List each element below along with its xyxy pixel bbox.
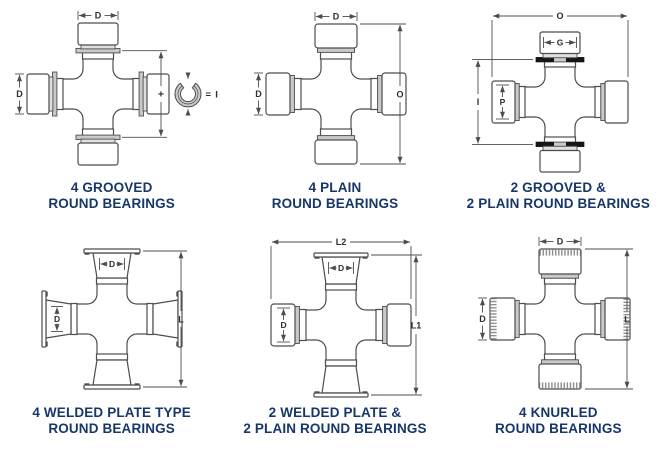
bearing-cap-top	[76, 23, 120, 59]
diagram-4-knurled: D D L	[447, 233, 670, 405]
bearing-cap-left-plain	[492, 81, 525, 123]
diagram-4-welded-plate: D D L	[0, 233, 223, 405]
dim-label-cap-diameter: D	[281, 320, 287, 330]
dim-cap-width: D	[539, 237, 581, 247]
dim-label-overall-height: L1	[411, 321, 422, 331]
bearing-cap-bottom-welded	[314, 360, 368, 397]
dim-label-cap-diameter: D	[479, 314, 486, 324]
dim-label-overall-height: L	[178, 315, 184, 325]
bearing-cap-bottom	[84, 354, 140, 389]
dim-label-inside-snap-rings: I	[477, 97, 480, 107]
dim-label-overall-height: O	[397, 90, 404, 100]
panel-4-plain: D D O 4 PLAIN ROUND BEARINGS	[223, 0, 446, 225]
caption-4-plain: 4 PLAIN ROUND BEARINGS	[272, 180, 399, 213]
dim-label-cap-width: D	[338, 263, 344, 273]
panel-4-grooved: D D + = I 4 GROOVED	[0, 0, 223, 225]
bearing-cap-bottom-grooved	[536, 137, 584, 172]
bearing-cap-bottom	[539, 354, 581, 389]
dim-cap-diameter: D	[15, 74, 24, 114]
bearing-cap-top	[539, 249, 581, 284]
panel-4-welded-plate: D D L 4 WELDED PLATE TYPE ROUND BEARINGS	[0, 225, 223, 450]
bearing-cap-left	[27, 72, 63, 116]
dim-label-plain-cap-diameter: P	[499, 97, 505, 107]
cross-body	[300, 58, 372, 130]
dim-label-cap-width: D	[109, 259, 115, 269]
dim-cap-diameter: D	[254, 73, 263, 115]
cross-body	[305, 289, 377, 361]
dim-label-cap-diameter: D	[16, 89, 23, 99]
bearing-cap-right	[147, 291, 182, 347]
bearing-types-diagram-sheet: D D + = I 4 GROOVED	[0, 0, 670, 450]
panel-2-grooved-2-plain: O G I P 2 GROOVED & 2 PL	[447, 0, 670, 225]
caption-line: 4 KNURLED	[495, 405, 622, 421]
dim-label-cap-diameter: D	[54, 314, 60, 324]
dim-label-cap-width: D	[333, 12, 340, 22]
snap-ring-group: = I	[175, 73, 219, 115]
bearing-cap-bottom	[315, 129, 357, 164]
caption-line: 2 GROOVED &	[467, 180, 650, 196]
panel-4-knurled: D D L 4 KNURLED ROUND BEARINGS	[447, 225, 670, 450]
caption-line: 2 PLAIN ROUND BEARINGS	[467, 196, 650, 212]
diagram-4-plain: D D O	[223, 8, 446, 180]
bearing-cap-right-plain	[595, 81, 628, 123]
dim-label-cap-width: D	[557, 237, 564, 247]
dim-label-overall-height: L	[624, 315, 630, 325]
cross-body	[76, 283, 148, 355]
dim-label-cap-width: D	[95, 11, 102, 21]
diagram-2-grooved-2-plain: O G I P	[447, 8, 670, 180]
dim-cap-width: D	[315, 12, 357, 22]
caption-line: ROUND BEARINGS	[495, 421, 622, 437]
panel-2-welded-2-plain: L2 D D L1 2 WELDED PLATE &	[223, 225, 446, 450]
caption-4-grooved: 4 GROOVED ROUND BEARINGS	[48, 180, 175, 213]
bearing-cap-bottom	[76, 129, 120, 165]
dim-label-snap-ring-equals: = I	[206, 90, 219, 101]
caption-line: ROUND BEARINGS	[48, 196, 175, 212]
cross-body	[524, 283, 596, 355]
cross-body	[62, 58, 134, 130]
caption-line: 4 PLAIN	[272, 180, 399, 196]
caption-line: 4 GROOVED	[48, 180, 175, 196]
bearing-cap-left-plain	[271, 304, 306, 346]
bearing-cap-right-plain	[376, 304, 411, 346]
caption-4-knurled: 4 KNURLED ROUND BEARINGS	[495, 405, 622, 438]
caption-line: 2 WELDED PLATE &	[243, 405, 426, 421]
caption-2-grooved-2-plain: 2 GROOVED & 2 PLAIN ROUND BEARINGS	[467, 180, 650, 213]
caption-line: 2 PLAIN ROUND BEARINGS	[243, 421, 426, 437]
diagram-4-grooved: D D + = I	[0, 8, 223, 180]
snap-ring-icon	[175, 83, 201, 107]
cross-body	[524, 66, 596, 138]
dim-label-overall-width: O	[556, 11, 563, 21]
caption-line: ROUND BEARINGS	[272, 196, 399, 212]
dim-label-plus: +	[158, 89, 164, 101]
diagram-2-welded-2-plain: L2 D D L1	[223, 233, 446, 405]
dim-label-cap-diameter: D	[256, 89, 263, 99]
dim-label-grooved-cap-width: G	[557, 38, 564, 48]
caption-line: ROUND BEARINGS	[32, 421, 191, 437]
bearing-cap-top	[315, 24, 357, 59]
caption-4-welded-plate: 4 WELDED PLATE TYPE ROUND BEARINGS	[32, 405, 191, 438]
caption-line: 4 WELDED PLATE TYPE	[32, 405, 191, 421]
dim-cap-diameter: D	[478, 298, 487, 340]
dim-cap-width: D	[78, 11, 118, 21]
bearing-cap-left	[266, 73, 301, 115]
caption-2-welded-2-plain: 2 WELDED PLATE & 2 PLAIN ROUND BEARINGS	[243, 405, 426, 438]
dim-label-overall-width: L2	[336, 237, 347, 247]
bearing-cap-left	[490, 298, 525, 340]
